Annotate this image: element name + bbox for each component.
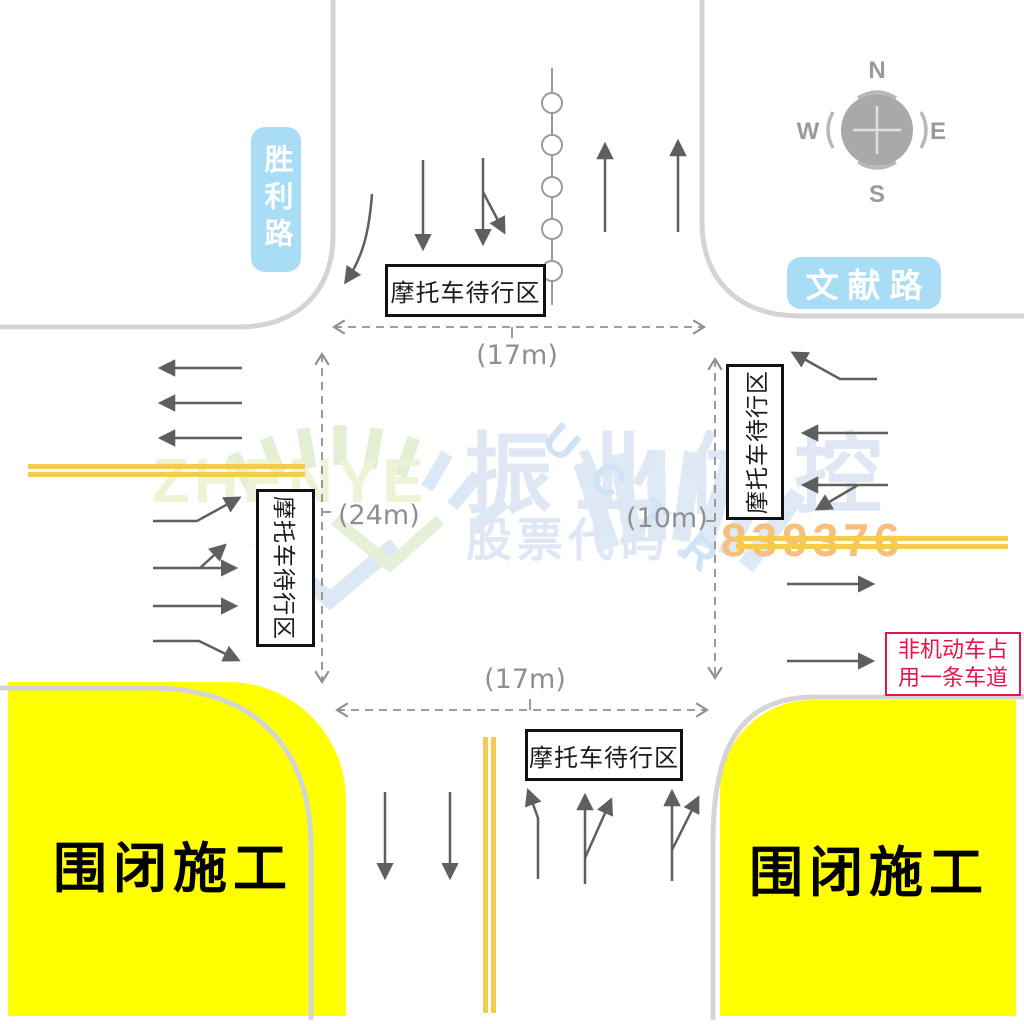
compass: N S W E [797, 57, 946, 208]
compass-s: S [869, 181, 885, 208]
moto-wait-label: 摩托车待行区 [269, 496, 303, 640]
dim-label-west: (24m) [338, 500, 420, 531]
moto-wait-label: 摩托车待行区 [391, 273, 541, 308]
south-approach-arrows [529, 793, 697, 884]
dim-label-bottom: (17m) [465, 664, 585, 695]
south-exit-arrows [385, 792, 450, 875]
intersection-diagram: 振业优控 股票代码：839376 ZHENYE U C T R [0, 0, 1024, 1024]
moto-wait-label: 摩托车待行区 [529, 738, 679, 773]
road-label-east: 文献路 [787, 257, 941, 309]
moto-wait-box-north: 摩托车待行区 [385, 264, 546, 317]
lane-divider-west [28, 464, 305, 477]
lane-divider-south [483, 737, 496, 1013]
lane-divider-east [736, 536, 1008, 549]
north-approach-arrows [347, 158, 503, 280]
north-exit-arrows [605, 144, 678, 232]
west-exit-arrows [163, 368, 242, 438]
road-label-west: 胜利路 [251, 127, 301, 272]
moto-wait-box-south: 摩托车待行区 [525, 729, 683, 781]
west-approach-arrows [153, 499, 237, 659]
east-approach-arrows [795, 354, 888, 508]
moto-wait-label: 摩托车待行区 [738, 370, 772, 514]
moto-wait-box-east: 摩托车待行区 [726, 364, 784, 520]
compass-w: W [797, 118, 820, 145]
note-box: 非机动车占 用一条车道 [885, 632, 1021, 696]
dim-label-top: (17m) [457, 340, 577, 371]
compass-e: E [930, 118, 946, 145]
dim-label-east: (10m) [626, 503, 708, 534]
note-line1: 非机动车占 [887, 636, 1019, 664]
note-line2: 用一条车道 [887, 664, 1019, 692]
construction-label-se: 围闭施工 [722, 828, 1016, 907]
construction-label-sw: 围闭施工 [8, 824, 338, 903]
moto-wait-box-west: 摩托车待行区 [256, 489, 315, 647]
east-exit-arrows [787, 584, 870, 661]
compass-n: N [868, 57, 885, 84]
